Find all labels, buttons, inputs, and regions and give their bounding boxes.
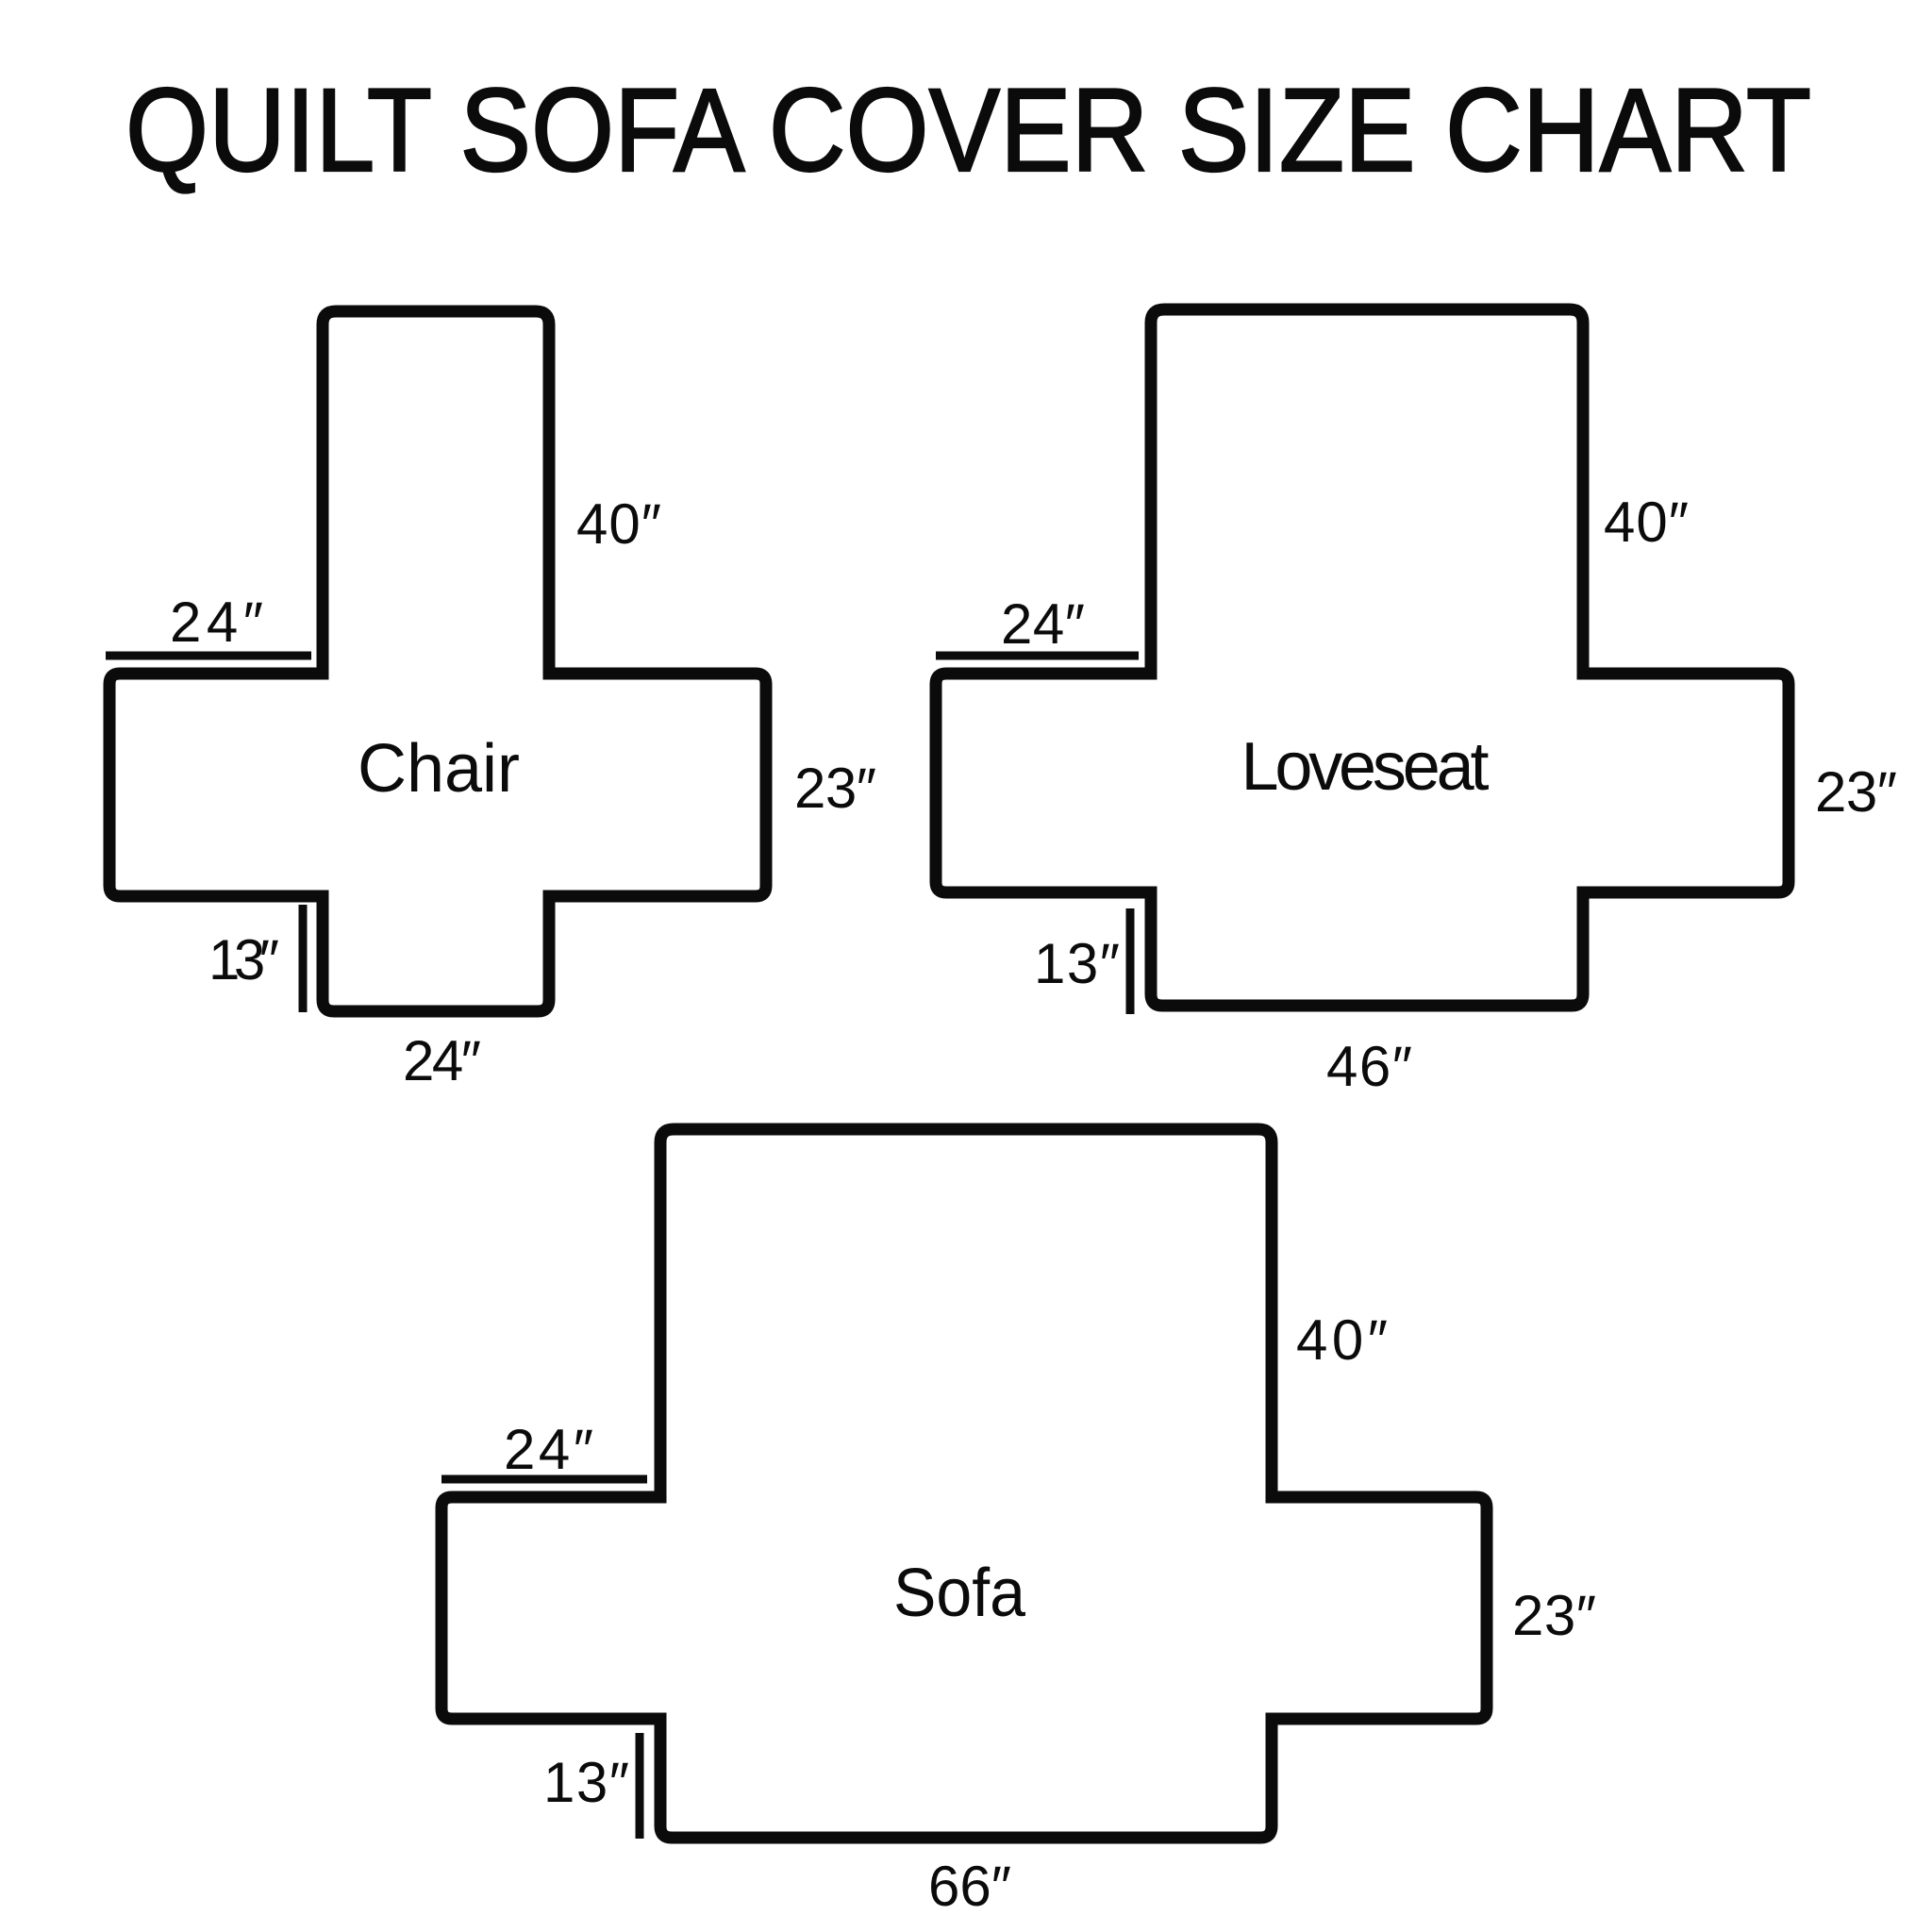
svg-text:24″: 24″: [504, 1418, 593, 1481]
svg-text:24″: 24″: [1001, 592, 1085, 656]
svg-text:23″: 23″: [1512, 1584, 1596, 1647]
svg-text:66″: 66″: [928, 1855, 1011, 1918]
svg-text:24″: 24″: [403, 1029, 481, 1092]
svg-text:QUILT SOFA COVER SIZE CHART: QUILT SOFA COVER SIZE CHART: [125, 65, 1811, 196]
svg-text:23″: 23″: [794, 757, 876, 820]
svg-text:24″: 24″: [170, 591, 263, 654]
svg-text:40″: 40″: [576, 492, 661, 556]
svg-text:Sofa: Sofa: [893, 1556, 1026, 1631]
svg-text:Chair: Chair: [358, 731, 520, 807]
svg-text:40″: 40″: [1604, 491, 1689, 554]
svg-text:13″: 13″: [543, 1751, 629, 1814]
svg-text:13″: 13″: [1034, 932, 1120, 995]
svg-text:Loveseat: Loveseat: [1241, 729, 1490, 805]
svg-text:13″: 13″: [208, 928, 279, 991]
svg-text:23″: 23″: [1815, 760, 1897, 824]
svg-text:40″: 40″: [1296, 1308, 1388, 1372]
svg-text:46″: 46″: [1326, 1035, 1412, 1098]
